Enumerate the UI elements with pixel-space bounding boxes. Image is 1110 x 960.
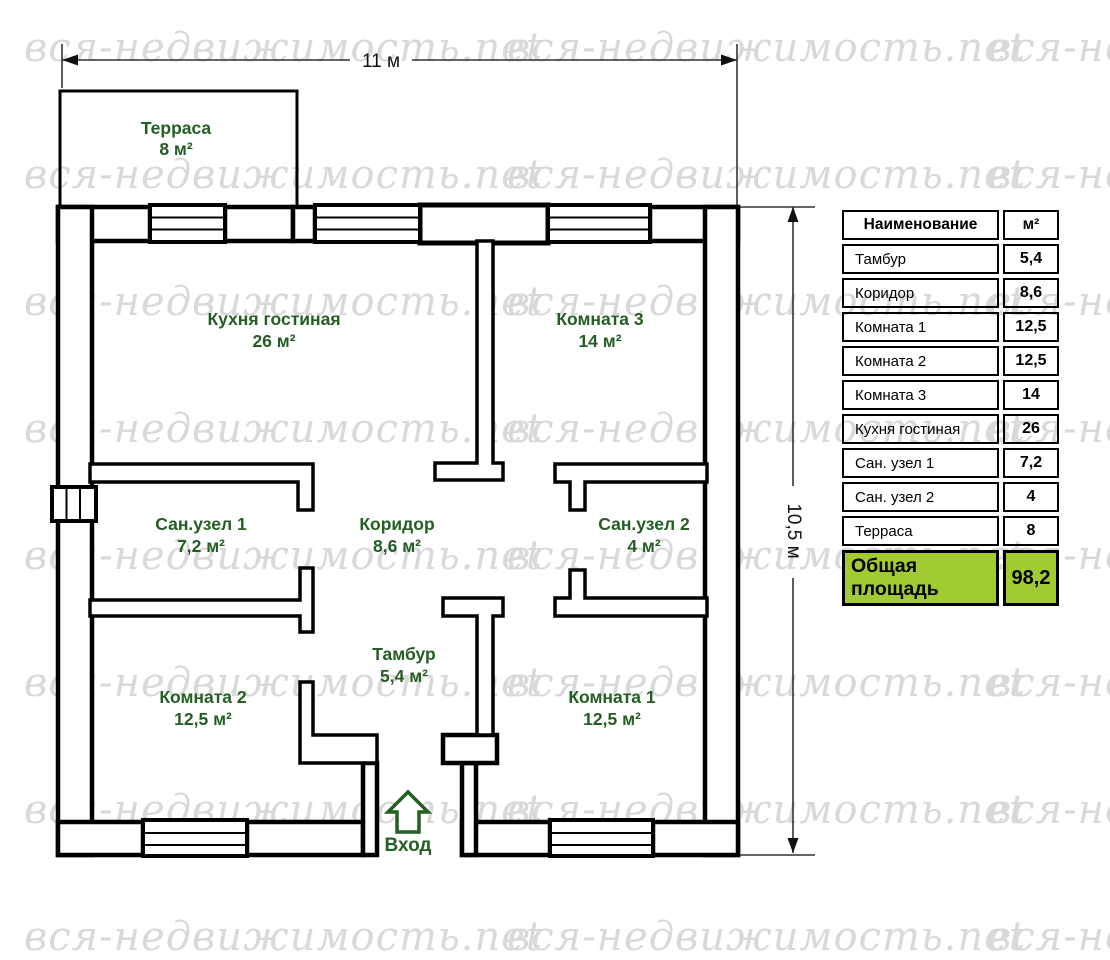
floor-plan-page: вся-недвижимость.net вся-недвижимость.ne… (0, 0, 1110, 960)
table-row: Сан. узел 2 4 (842, 482, 1059, 512)
wall-segment (58, 207, 92, 488)
wall-tambur-left (300, 682, 377, 763)
window (150, 205, 225, 242)
row-name: Комната 2 (842, 346, 999, 376)
table-row: Комната 2 12,5 (842, 346, 1059, 376)
room-label-sanuzel1: Сан.узел 1 (155, 514, 247, 534)
table-row: Тамбур 5,4 (842, 244, 1059, 274)
arrow-up-icon (788, 207, 799, 222)
wall-kitchen-room3 (435, 241, 503, 480)
wall-sanuzel1-top (90, 464, 313, 510)
room-area-room1: 12,5 м² (583, 709, 641, 729)
room-label-sanuzel2: Сан.узел 2 (598, 514, 690, 534)
arrow-left-icon (62, 55, 78, 66)
height-dimension-label: 10,5 м (783, 503, 804, 558)
room-area-room3: 14 м² (578, 331, 621, 351)
table-row: Комната 1 12,5 (842, 312, 1059, 342)
wall-segment (247, 822, 363, 855)
row-area: 12,5 (1003, 312, 1059, 342)
row-area: 5,4 (1003, 244, 1059, 274)
table-total-row: Общая площадь 98,2 (842, 550, 1059, 606)
row-name: Сан. узел 1 (842, 448, 999, 478)
room-label-room3: Комната 3 (556, 309, 644, 329)
wall-segment (58, 822, 143, 855)
wall-segment (58, 520, 92, 855)
wall-pier (420, 205, 548, 243)
wall-sanuzel2-bottom (555, 570, 707, 616)
area-summary-table: Наименование м² Тамбур 5,4 Коридор 8,6 К… (838, 206, 1063, 610)
window (143, 820, 247, 856)
arrow-right-icon (721, 55, 737, 66)
wall-pier (293, 207, 315, 241)
dimension-right: 10,5 м (740, 207, 815, 855)
table-row: Коридор 8,6 (842, 278, 1059, 308)
total-area: 98,2 (1003, 550, 1059, 606)
row-name: Комната 1 (842, 312, 999, 342)
row-name: Терраса (842, 516, 999, 546)
entrance-arrow-icon (388, 792, 428, 832)
row-area: 14 (1003, 380, 1059, 410)
porch-wall (462, 763, 476, 855)
row-name: Кухня гостиная (842, 414, 999, 444)
row-name: Комната 3 (842, 380, 999, 410)
room-label-koridor: Коридор (359, 514, 434, 534)
arrow-down-icon (788, 838, 799, 853)
room-area-koridor: 8,6 м² (373, 536, 421, 556)
porch-wall (363, 763, 377, 855)
row-area: 12,5 (1003, 346, 1059, 376)
entrance: Вход (385, 792, 432, 856)
room-area-tambur: 5,4 м² (380, 666, 428, 686)
room-label-room2: Комната 2 (159, 687, 247, 707)
table-header-area: м² (1003, 210, 1059, 240)
window (52, 487, 96, 521)
room-area-kitchen: 26 м² (252, 331, 295, 351)
table-row: Комната 3 14 (842, 380, 1059, 410)
room-area-terrasa: 8 м² (159, 139, 193, 159)
wall-sanuzel2-top (555, 464, 707, 510)
room-area-sanuzel1: 7,2 м² (177, 536, 225, 556)
room-label-room1: Комната 1 (568, 687, 656, 707)
room-label-kitchen: Кухня гостиная (207, 309, 340, 329)
row-area: 7,2 (1003, 448, 1059, 478)
row-area: 8 (1003, 516, 1059, 546)
entrance-label: Вход (385, 835, 432, 856)
row-area: 8,6 (1003, 278, 1059, 308)
wall-segment (705, 207, 738, 855)
table-row: Кухня гостиная 26 (842, 414, 1059, 444)
row-name: Коридор (842, 278, 999, 308)
width-dimension-label: 11 м (362, 51, 400, 72)
wall-segment (225, 207, 293, 241)
window (548, 205, 650, 242)
wall-segment (653, 822, 738, 855)
total-name: Общая площадь (842, 550, 999, 606)
window (550, 820, 653, 856)
table-header-row: Наименование м² (842, 210, 1059, 240)
wall-sanuzel1-bottom (90, 568, 313, 632)
row-name: Тамбур (842, 244, 999, 274)
room-area-sanuzel2: 4 м² (627, 536, 661, 556)
window (315, 205, 420, 242)
table-row: Терраса 8 (842, 516, 1059, 546)
room-label-terrasa: Терраса (141, 118, 212, 138)
wall-tambur-right (443, 598, 503, 735)
table-row: Сан. узел 1 7,2 (842, 448, 1059, 478)
porch-wall (443, 735, 497, 763)
room-area-room2: 12,5 м² (174, 709, 232, 729)
room-label-tambur: Тамбур (372, 644, 435, 664)
row-area: 4 (1003, 482, 1059, 512)
table-header-name: Наименование (842, 210, 999, 240)
row-area: 26 (1003, 414, 1059, 444)
row-name: Сан. узел 2 (842, 482, 999, 512)
